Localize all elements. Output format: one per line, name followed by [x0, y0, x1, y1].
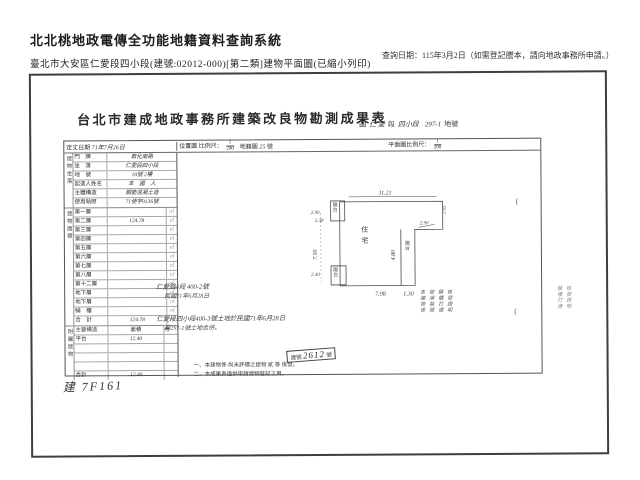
annex-note — [163, 344, 177, 352]
area-unit: ㎡ — [166, 244, 177, 252]
hand-annotation-b: 仁愛段四小段400-3號土地於民國71年6月28日 與297-1號土地合併。 — [156, 312, 285, 332]
cadastral-number: 25 — [259, 144, 265, 150]
hand-annotation-b-line2: 與297-1號土地合併。 — [164, 322, 285, 332]
floor-label: 第八層 — [74, 271, 108, 279]
scale-row: 定丈日期 71年7月26日 位置圖 比例尺： 1 240 地籍圖 25 號 平面… — [64, 139, 540, 154]
location-value: 297-1 — [425, 120, 441, 128]
floor-area-value — [108, 244, 166, 252]
annex-structure — [74, 344, 108, 352]
annex-note — [164, 371, 178, 380]
floor-label: 第一層 — [74, 208, 108, 216]
row-value: 仁愛段四小段 — [107, 162, 176, 170]
plan-scale-cell: 平面圖比例尺： 1 200 — [386, 139, 445, 150]
building-info-section: 建物坐落 門 牌敦化南路坐 落仁愛段四小段地 號10號 2樓起造人姓名本 國 人… — [64, 153, 176, 209]
floor-area-value: 124.78 — [108, 217, 166, 225]
dim-left: 7.50 — [313, 250, 319, 261]
location-value: 四小段 — [398, 120, 419, 128]
row-value: 10號 2樓 — [107, 171, 176, 179]
row-value: 鋼筋混凝土造 — [108, 189, 177, 197]
annex-note — [164, 362, 178, 370]
vertical-annotation-column: 騎樓打通 — [555, 286, 562, 351]
right-vertical-annotation: 騎樓打通核發證明 — [555, 285, 571, 350]
survey-frame: 定丈日期 71年7月26日 位置圖 比例尺： 1 240 地籍圖 25 號 平面… — [63, 138, 542, 377]
left-table: 建物坐落 門 牌敦化南路坐 落仁愛段四小段地 號10號 2樓起造人姓名本 國 人… — [64, 153, 178, 378]
row-value: 本 國 人 — [107, 180, 176, 188]
dim-top: 11.21 — [379, 191, 392, 197]
location-map-fraction: 1 240 — [226, 141, 234, 152]
survey-date-cell: 定丈日期 71年7月26日 — [64, 142, 177, 152]
dim-strip-bottom: 1.30 — [403, 291, 414, 297]
cadastral-map-cell: 地籍圖 25 號 — [238, 141, 275, 150]
annex-note — [163, 335, 177, 343]
balcony-label-strip: 陽台 — [404, 240, 409, 250]
vertical-annotation-column: 使用執照 — [427, 289, 434, 367]
survey-date-value: 71年7月26日 — [92, 145, 125, 151]
area-unit: ㎡ — [166, 262, 177, 270]
floor-area-value — [108, 262, 166, 270]
fraction-denominator: 240 — [226, 146, 234, 152]
floor-label: 合 計 — [74, 316, 108, 325]
floor-area-value — [108, 226, 166, 234]
scanned-document: 台北市建成地政事務所建築改良物勘測成果表 圖仁 愛段四小段297-1地號 定丈日… — [29, 70, 609, 458]
interior-label: 住宅 — [361, 226, 368, 248]
survey-date-label: 定丈日期 — [66, 145, 90, 151]
row-value: 71使字0136號 — [108, 198, 177, 207]
cadastral-label: 地籍圖 — [240, 144, 258, 150]
stamp-value: 2612 — [303, 349, 326, 361]
row-label: 主體構造 — [74, 189, 108, 197]
floor-label: 地下層 — [74, 289, 108, 297]
balcony-label-bl: 陽台 — [332, 267, 337, 277]
table-row: 使用執照71使字0136號 — [74, 198, 177, 208]
building-number-handwritten: 建 7F161 — [62, 376, 123, 395]
location-label: 圖 — [359, 121, 366, 129]
form-notes: 一、本建物係 尚未評價之建物 貳 等 俟發。 二、本成果表僅供申請建物登記之用。 — [194, 361, 299, 380]
location-row: 圖仁 愛段四小段297-1地號 — [359, 119, 458, 130]
location-map-scale: 位置圖 比例尺： 1 240 — [177, 140, 238, 151]
location-value: 仁 愛 — [369, 121, 385, 129]
hand-annotation-a-line1: 仁愛路4段 400-2號 — [156, 281, 209, 291]
floor-area-value — [108, 208, 166, 216]
row-label: 地 號 — [73, 171, 107, 179]
floor-label: 地下層 — [74, 298, 108, 306]
annex-area-value — [108, 344, 163, 352]
dim-bottom: 7.98 — [375, 292, 386, 298]
floor-label: 騎 樓 — [74, 307, 108, 315]
vertical-annotation-column: 騎樓打通 — [436, 289, 443, 367]
location-label: 段 — [388, 121, 395, 129]
dim-balcony-tl-w: 2.90 — [311, 211, 320, 216]
annex-structure: 平台 — [74, 335, 108, 343]
floor-plan-drawing: 11.21 7.50 7.98 1.30 4.80 2.90 1.65 2.90… — [182, 154, 538, 371]
floor-label: 第六層 — [74, 253, 108, 261]
floor-label: 第七層 — [74, 262, 108, 270]
plan-scale-label: 平面圖比例尺： — [388, 142, 430, 148]
annex-structure — [75, 353, 109, 361]
annex-header-cell: 主要構造 — [74, 326, 108, 334]
dim-notch-a: 2.90 — [420, 221, 429, 226]
annex-note — [164, 353, 178, 361]
dim-notch-b: 1.65 — [443, 205, 448, 214]
area-unit: ㎡ — [166, 226, 177, 234]
floor-area-value — [108, 253, 166, 261]
annex-group-label: 附屬建物 — [65, 326, 74, 380]
floor-area-value — [108, 271, 166, 279]
floor-area-section: 建物面積 第一層㎡第二層124.78㎡第三層㎡第四層㎡第五層㎡第六層㎡第七層㎡第… — [65, 208, 178, 327]
area-unit: ㎡ — [166, 253, 177, 261]
area-unit: ㎡ — [166, 235, 177, 243]
location-label: 地號 — [444, 120, 458, 128]
location-map-label: 位置圖 比例尺： — [179, 144, 223, 150]
area-unit: ㎡ — [166, 271, 177, 279]
floor-area-value — [108, 235, 166, 243]
floor-label: 第四層 — [74, 235, 108, 243]
row-label: 門 牌 — [73, 153, 107, 161]
plan-scale-fraction: 1 200 — [434, 139, 442, 150]
system-title: 北北桃地政電傳全功能地籍資料查詢系統 — [30, 30, 282, 49]
form-title: 台北市建成地政事務所建築改良物勘測成果表 — [77, 108, 387, 129]
dim-strip-left: 4.80 — [390, 250, 397, 261]
dim-balcony-bl-w: 2.40 — [311, 273, 320, 278]
row-label: 使用執照 — [74, 198, 108, 207]
row-label: 起造人姓名 — [73, 180, 107, 188]
annex-area-value — [109, 353, 164, 361]
fraction-denominator: 200 — [434, 144, 442, 150]
row-label: 坐 落 — [73, 162, 107, 170]
hand-annotation-a-line2: 民國71年6月28日 — [164, 291, 209, 300]
floor-label: 第十二層 — [74, 280, 108, 288]
stamp-suffix: 號 — [326, 352, 332, 358]
row-value: 敦化南路 — [107, 153, 176, 161]
hand-annotation-b-line1: 仁愛段四小段400-3號土地於民國71年6月28日 — [156, 312, 285, 323]
vertical-annotation: 本建物係使用執照騎樓打通核發證明 — [418, 289, 452, 367]
info-group-label: 建物坐落 — [64, 153, 73, 207]
paren-mark-1: ( — [516, 197, 519, 206]
annex-structure — [75, 362, 109, 370]
annex-area-value — [109, 362, 164, 370]
annex-header-cell: 面積 — [108, 326, 163, 334]
vertical-annotation-column: 核發證明 — [445, 289, 452, 367]
hand-annotation-a: 仁愛路4段 400-2號 民國71年6月28日 — [156, 281, 209, 300]
document-subtitle: 臺北市大安區仁愛段四小段(建號:02012-000)[第二類]建物平面圖(已縮小… — [30, 56, 371, 70]
dim-balcony-tl-h: 2.38 — [315, 219, 324, 224]
query-date: 查詢日期：115年3月2日（如需登記謄本，請向地政事務所申請。） — [382, 50, 614, 61]
vertical-annotation-column: 本建物係 — [418, 289, 425, 367]
floor-label: 第二層 — [74, 217, 108, 225]
vertical-annotation-column: 核發證明 — [564, 285, 571, 350]
annex-section: 附屬建物 主要構造面積考平台12.40合計12.40 — [65, 326, 177, 381]
area-unit: ㎡ — [166, 217, 177, 225]
cadastral-suffix: 號 — [267, 144, 273, 150]
area-unit: ㎡ — [166, 208, 177, 216]
note-line-2: 二、本成果表僅供申請建物登記之用。 — [194, 370, 299, 380]
annex-area-value: 12.40 — [108, 335, 163, 343]
floor-label: 第五層 — [74, 244, 108, 252]
paren-mark-2: ( — [514, 307, 517, 316]
floor-label: 第三層 — [74, 226, 108, 234]
balcony-label-tl: 陽台 — [332, 202, 337, 212]
